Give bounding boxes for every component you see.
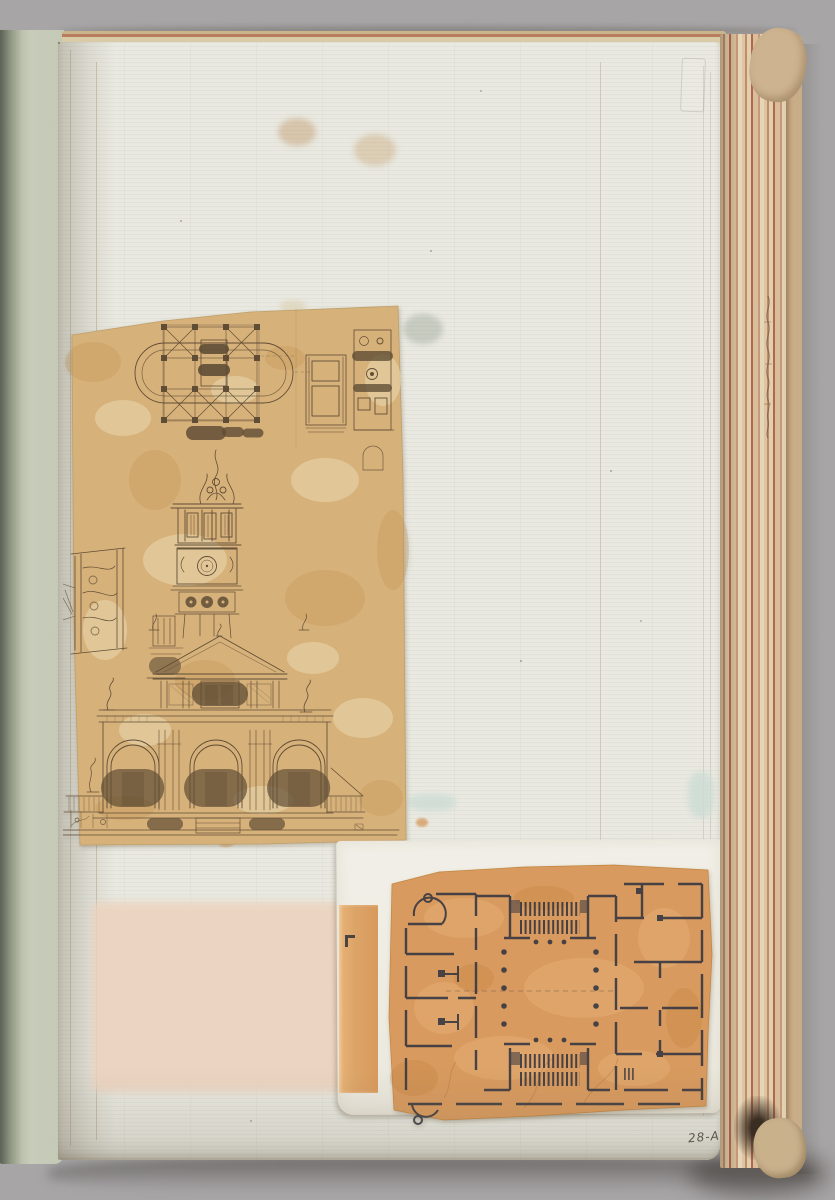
blind-stamp bbox=[680, 58, 706, 113]
page-number-label: 28-A bbox=[687, 1129, 720, 1146]
page-crease bbox=[600, 62, 601, 842]
ink-mark bbox=[345, 935, 348, 947]
blue-pigment-patch bbox=[688, 772, 714, 818]
blue-pigment-patch bbox=[408, 794, 456, 811]
fore-edge-page-block bbox=[720, 34, 802, 1168]
plan-elevation-sheet bbox=[63, 298, 415, 850]
foxing-stain bbox=[416, 818, 428, 827]
offset-stain-patch bbox=[92, 902, 350, 1092]
foxing-stain bbox=[354, 134, 396, 166]
book-back-cover bbox=[0, 30, 64, 1164]
foxing-stain bbox=[278, 118, 316, 146]
floor-plan-sheet bbox=[384, 858, 718, 1128]
photo-backdrop: 28-A bbox=[0, 0, 835, 1200]
paper-specks bbox=[58, 42, 60, 44]
spine-edge bbox=[786, 34, 802, 1168]
fore-edge-inscription bbox=[760, 292, 776, 442]
orange-strip bbox=[339, 905, 378, 1093]
